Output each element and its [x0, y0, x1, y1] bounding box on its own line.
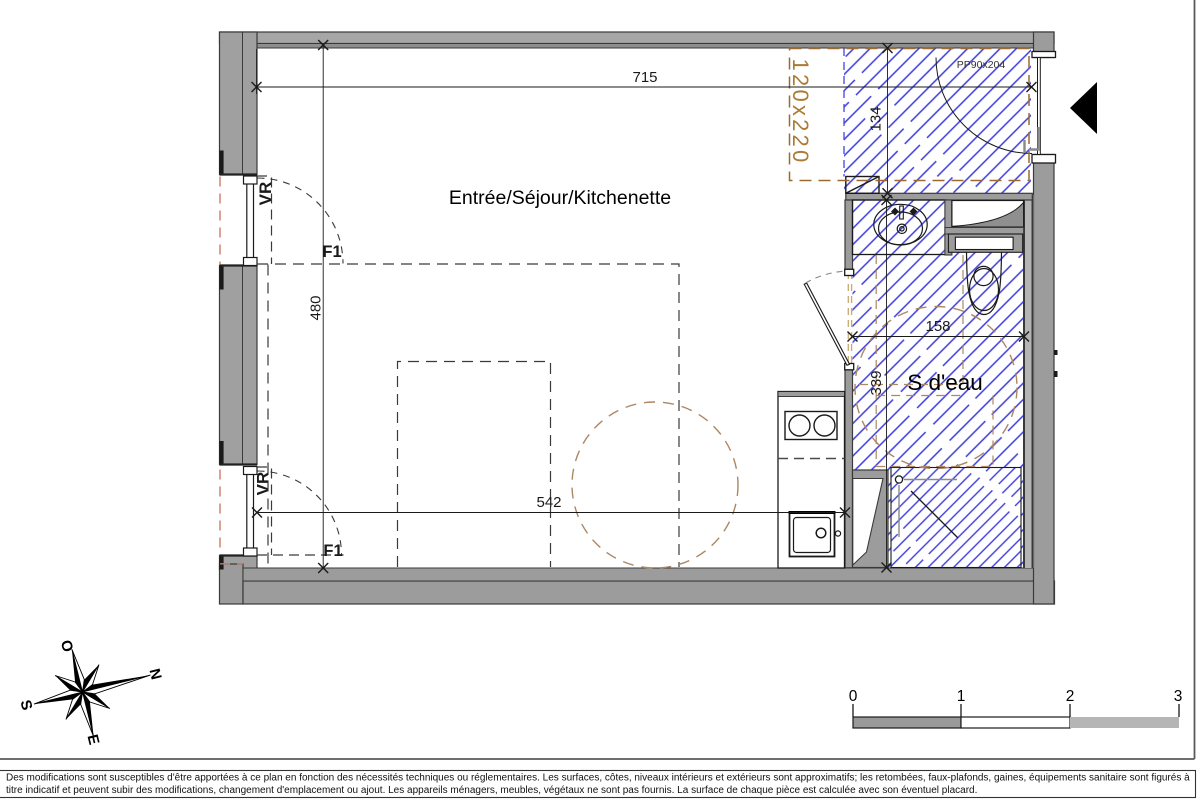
svg-text:VR: VR [256, 182, 275, 206]
svg-text:3: 3 [1174, 688, 1183, 705]
svg-text:S d'eau: S d'eau [907, 370, 983, 395]
svg-text:134: 134 [868, 106, 885, 131]
svg-text:480: 480 [308, 295, 325, 320]
svg-text:339: 339 [868, 370, 885, 395]
svg-text:715: 715 [632, 69, 657, 86]
svg-text:542: 542 [536, 494, 561, 511]
svg-text:0: 0 [849, 688, 858, 705]
svg-text:1: 1 [957, 688, 966, 705]
svg-text:2: 2 [1066, 688, 1075, 705]
svg-text:158: 158 [925, 318, 950, 335]
svg-text:Des modifications sont suscept: Des modifications sont susceptibles d'êt… [6, 773, 1190, 784]
svg-text:VR: VR [254, 472, 273, 496]
svg-text:120x220: 120x220 [788, 59, 813, 166]
svg-text:PP90x204: PP90x204 [957, 59, 1006, 71]
svg-text:F1: F1 [322, 243, 341, 261]
svg-text:titre indicatif et peuvent sub: titre indicatif et peuvent subir des mod… [6, 785, 977, 796]
svg-text:Entrée/Séjour/Kitchenette: Entrée/Séjour/Kitchenette [449, 187, 671, 209]
svg-text:F1: F1 [323, 542, 342, 560]
